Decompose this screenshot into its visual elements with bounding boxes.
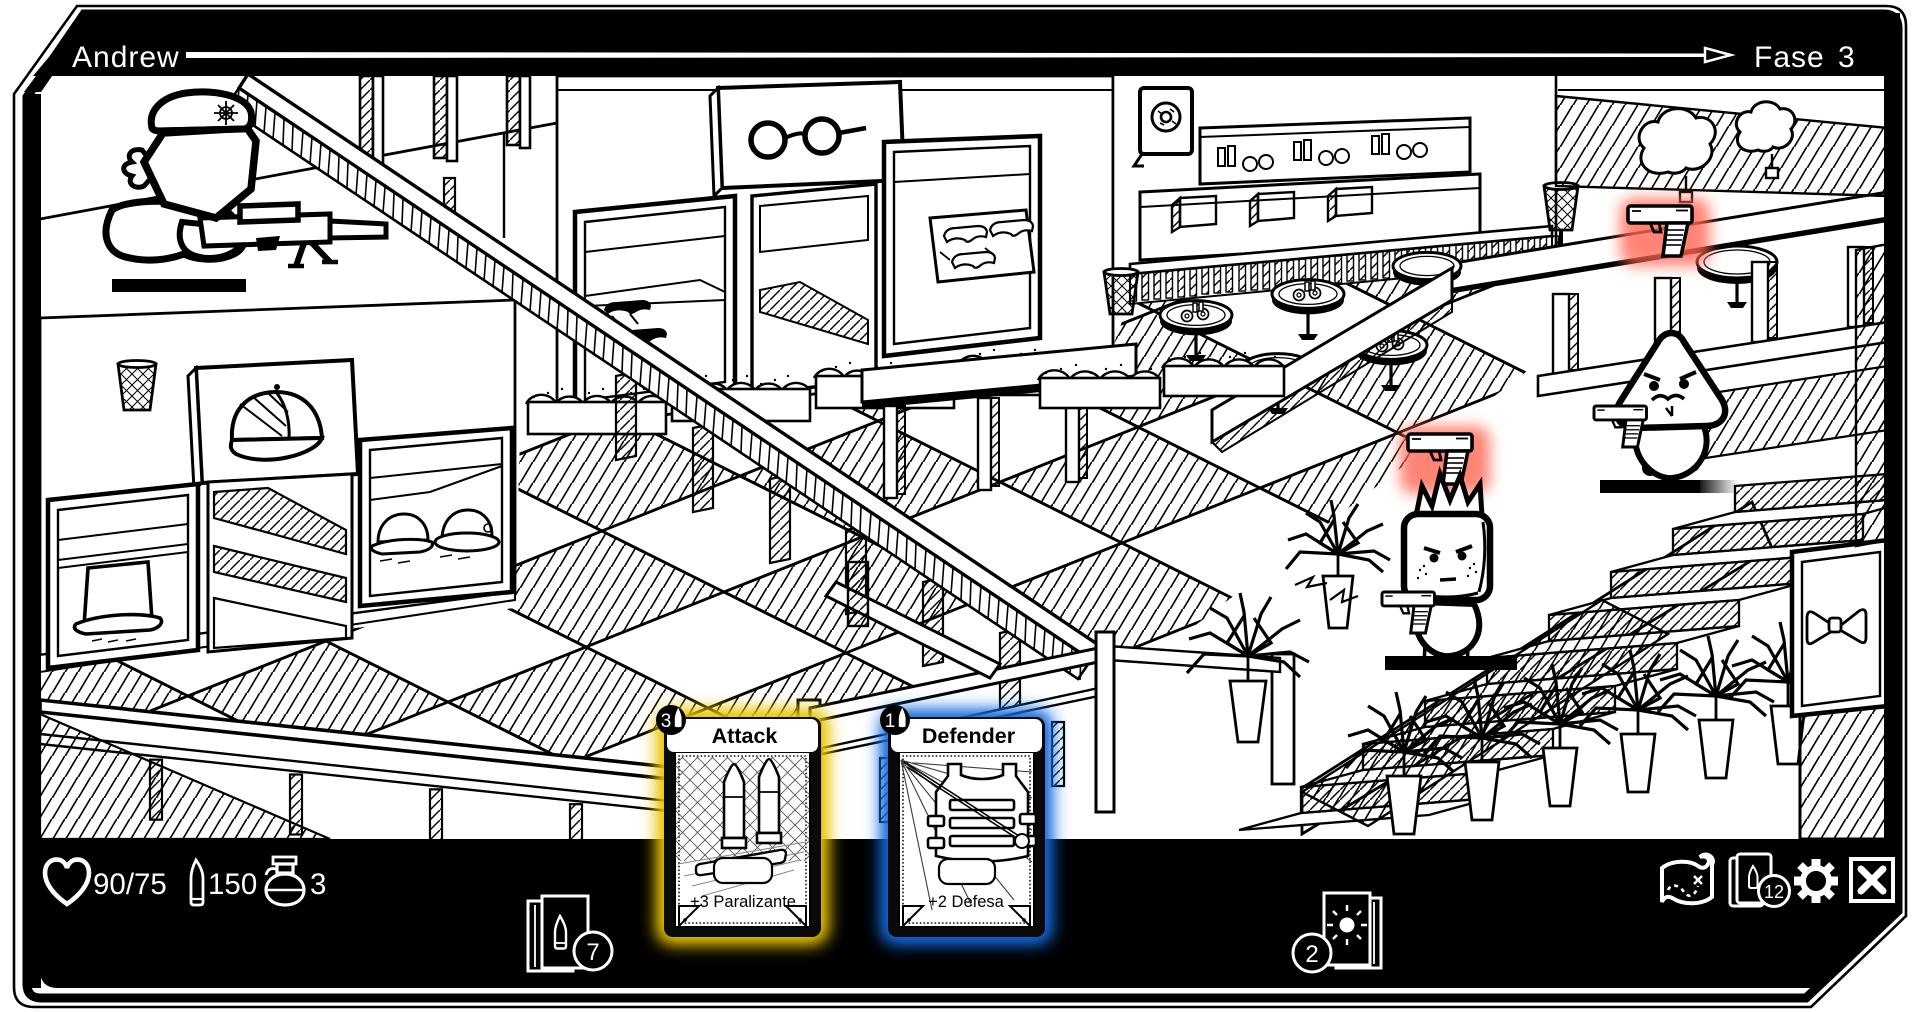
svg-text:Attack: Attack bbox=[712, 724, 778, 748]
svg-text:Andrew: Andrew bbox=[72, 41, 180, 74]
svg-text:+2 Defesa: +2 Defesa bbox=[928, 893, 1004, 911]
svg-text:7: 7 bbox=[586, 939, 599, 966]
svg-text:12: 12 bbox=[1764, 882, 1784, 902]
svg-text:2: 2 bbox=[1305, 941, 1318, 968]
svg-text:Fase: Fase bbox=[1754, 41, 1825, 74]
svg-text:90/75: 90/75 bbox=[93, 868, 167, 901]
svg-text:150: 150 bbox=[208, 868, 257, 901]
svg-text:+3 Paralizante: +3 Paralizante bbox=[690, 893, 796, 911]
svg-text:1: 1 bbox=[885, 711, 896, 732]
svg-text:3: 3 bbox=[310, 868, 326, 901]
svg-text:3: 3 bbox=[1838, 41, 1855, 74]
svg-text:Defender: Defender bbox=[922, 724, 1016, 748]
svg-text:3: 3 bbox=[661, 711, 672, 732]
